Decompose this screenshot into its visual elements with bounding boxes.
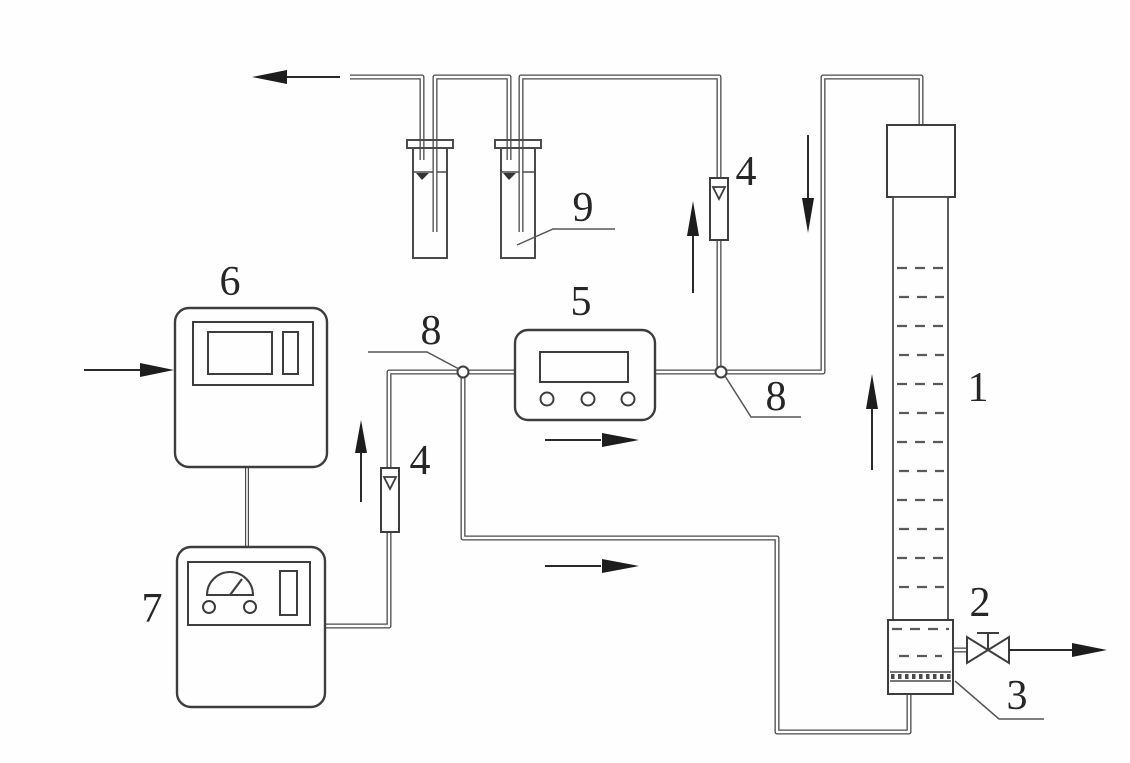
- label-flowmeter-left: 4: [410, 438, 431, 484]
- leader-absorption-bottle: [517, 229, 615, 245]
- label-detector: 5: [571, 279, 592, 325]
- leader-junction-left: [368, 352, 459, 369]
- pipe-column-feed-run: [463, 372, 909, 732]
- leader-diffuser: [955, 681, 1044, 719]
- power-housing: [177, 547, 325, 707]
- bottle-meniscus: [416, 173, 429, 180]
- right-flow-arrow-detector: [545, 433, 639, 447]
- inlet-right-arrow: [84, 363, 174, 377]
- label-diffuser: 3: [1007, 673, 1028, 719]
- label-absorption-bottle: 9: [573, 185, 594, 231]
- down-flow-arrow-return-line: [802, 135, 814, 233]
- up-flow-arrow-right-flowmeter: [687, 201, 699, 293]
- exhaust-left-arrow: [252, 70, 340, 84]
- reaction-column: [887, 125, 955, 694]
- apparatus-schematic-figure: 1 2 3 4 4 5 6 7 8 8 9: [0, 0, 1130, 763]
- drain-valve: [967, 633, 1107, 663]
- junction-right: [716, 367, 727, 378]
- outlet-right-arrow-valve: [1072, 643, 1107, 657]
- valve-body-left: [967, 637, 988, 663]
- flowmeter-left: [381, 468, 399, 532]
- right-flow-arrow-bottom-line: [545, 559, 639, 573]
- bottle-meniscus: [503, 173, 516, 180]
- label-valve: 2: [970, 580, 991, 626]
- up-flow-arrow-column: [866, 374, 878, 470]
- power-supply-unit: [177, 547, 325, 707]
- bottle-body: [501, 148, 535, 258]
- controller-unit: [175, 308, 327, 467]
- detector-unit: [515, 330, 655, 420]
- absorption-bottle-right: [495, 140, 541, 258]
- label-junction-left: 8: [421, 308, 442, 354]
- junction-left: [458, 367, 469, 378]
- process-flow-diagram: 1 2 3 4 4 5 6 7 8 8 9: [0, 0, 1130, 763]
- bottle-cap: [495, 140, 541, 148]
- leader-junction-right: [725, 376, 801, 417]
- label-junction-right: 8: [766, 374, 787, 420]
- label-power-meter: 7: [142, 586, 163, 632]
- column-body: [893, 197, 948, 620]
- column-header: [887, 125, 955, 197]
- bottle-cap: [407, 140, 453, 148]
- bottle-body: [413, 148, 447, 258]
- label-column: 1: [968, 365, 989, 411]
- label-flowmeter-right: 4: [736, 149, 757, 195]
- label-controller: 6: [220, 259, 241, 305]
- up-flow-arrow-left-flowmeter: [355, 420, 367, 502]
- detector-housing: [515, 330, 655, 420]
- absorption-bottle-left: [407, 140, 453, 258]
- flowmeter-right: [710, 178, 728, 240]
- valve-body-right: [988, 637, 1009, 663]
